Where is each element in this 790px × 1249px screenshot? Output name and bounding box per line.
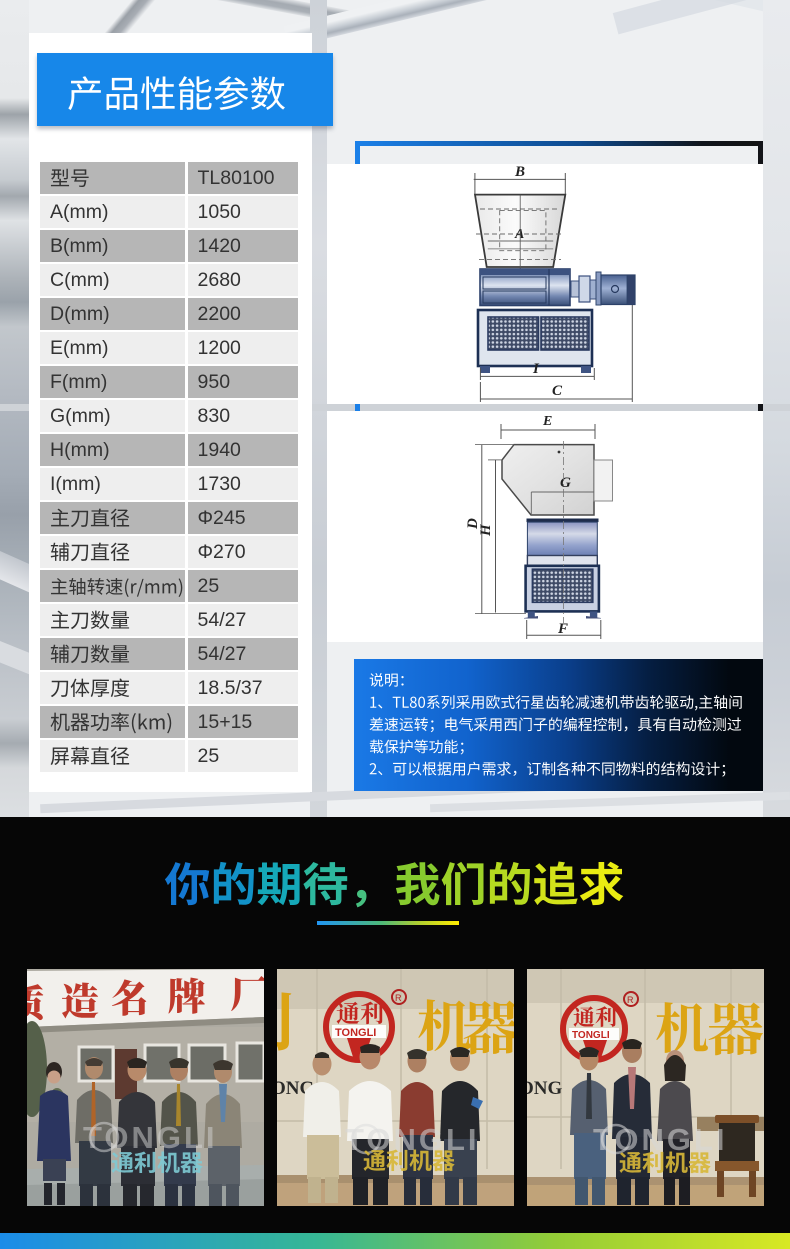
svg-text:R: R [627,995,634,1005]
svg-text:TONGLI: TONGLI [572,1030,610,1041]
svg-text:ONG: ONG [527,1078,563,1099]
svg-text:R: R [395,993,402,1003]
svg-text:TONGLI: TONGLI [335,1027,376,1039]
